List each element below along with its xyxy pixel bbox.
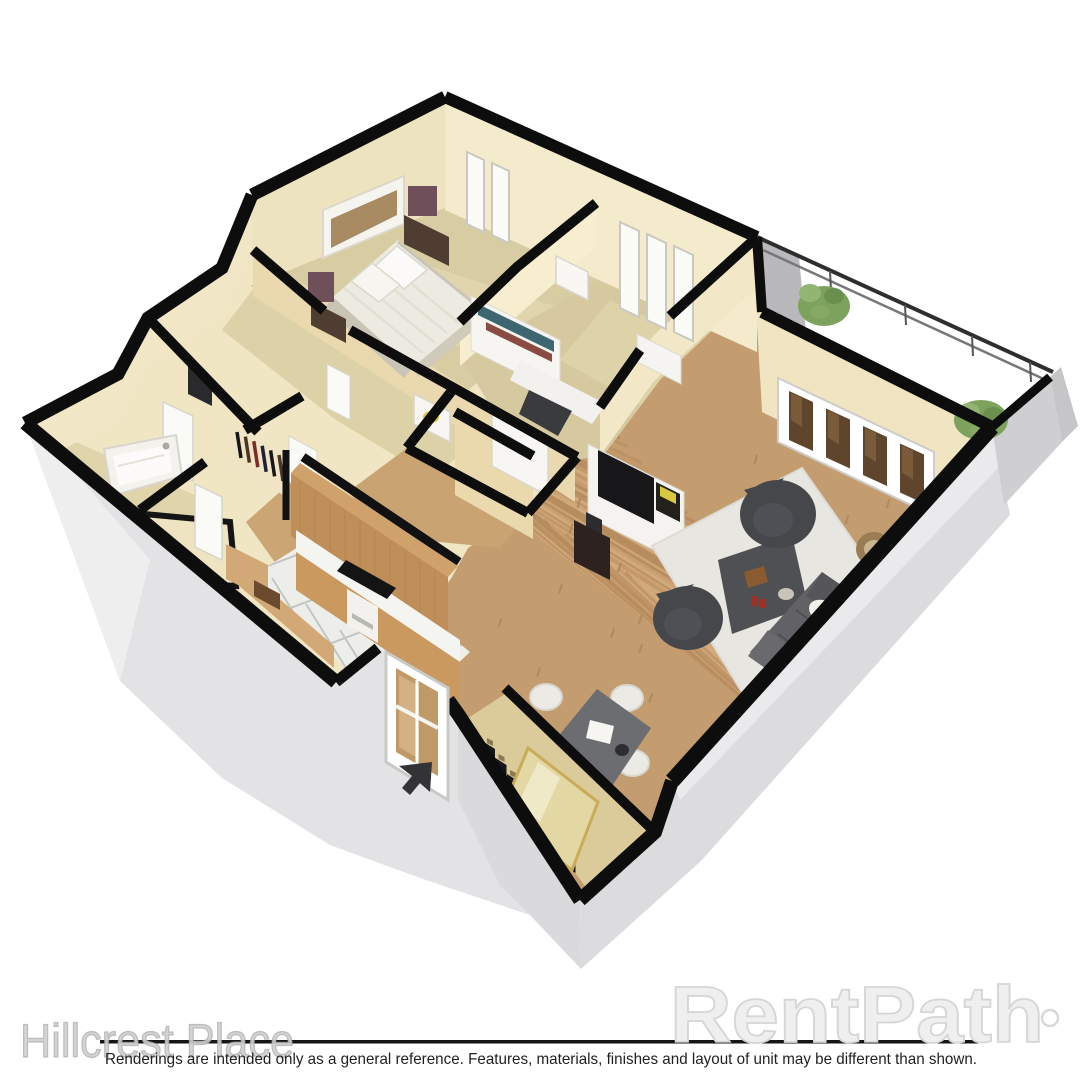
- svg-text:Renderings are intended only a: Renderings are intended only as a genera…: [105, 1051, 977, 1068]
- svg-text:RentPath: RentPath: [670, 970, 1044, 1059]
